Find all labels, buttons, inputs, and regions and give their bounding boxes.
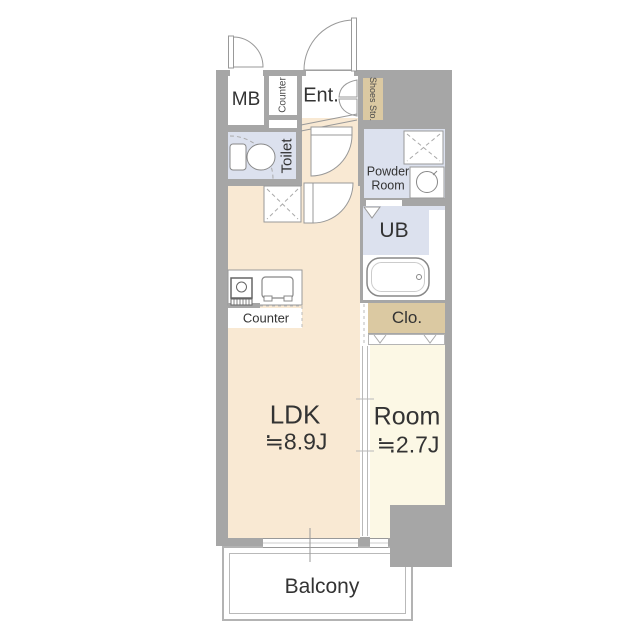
room-floor-extension bbox=[370, 505, 390, 538]
hallway-floor bbox=[302, 118, 358, 186]
pillar-block bbox=[390, 505, 452, 567]
toilet-label: Toilet bbox=[279, 138, 296, 173]
room-window bbox=[370, 538, 388, 548]
closet-folding-door bbox=[368, 334, 445, 345]
entrance-door-swing-icon bbox=[304, 18, 357, 71]
closet-side-gap bbox=[360, 303, 368, 345]
ldk-floor bbox=[228, 186, 360, 538]
shoes-storage-label: Shoes Sto. bbox=[368, 77, 378, 121]
ldk-balcony-window bbox=[263, 538, 358, 548]
ldk-room-partition bbox=[360, 345, 370, 537]
mb-door-swing-icon bbox=[229, 36, 264, 68]
mb-door-gap bbox=[230, 68, 263, 76]
powder-room-label: Powder Room bbox=[357, 165, 419, 194]
entrance-door-gap bbox=[306, 71, 354, 79]
unit-bath-label: UB bbox=[379, 219, 408, 243]
balcony-label: Balcony bbox=[285, 575, 360, 599]
floor-plan: MB Counter Ent. Shoes Sto. Toilet Powder… bbox=[0, 0, 640, 640]
ldk-size-label: ≒8.9J bbox=[265, 429, 328, 456]
entrance-label: Ent. bbox=[303, 85, 339, 108]
ldk-label: LDK bbox=[270, 400, 321, 431]
meter-box-label: MB bbox=[232, 89, 261, 111]
closet-label: Clo. bbox=[392, 308, 422, 328]
entry-counter-label: Counter bbox=[278, 77, 289, 113]
room-size-label: ≒2.7J bbox=[377, 432, 440, 459]
unit-bath-side-strip bbox=[429, 210, 445, 255]
entry-counter-lower-box bbox=[269, 120, 297, 128]
unit-bath-lower-floor bbox=[363, 255, 445, 300]
kitchen-counter-label: Counter bbox=[243, 311, 289, 326]
room-label: Room bbox=[374, 403, 441, 432]
